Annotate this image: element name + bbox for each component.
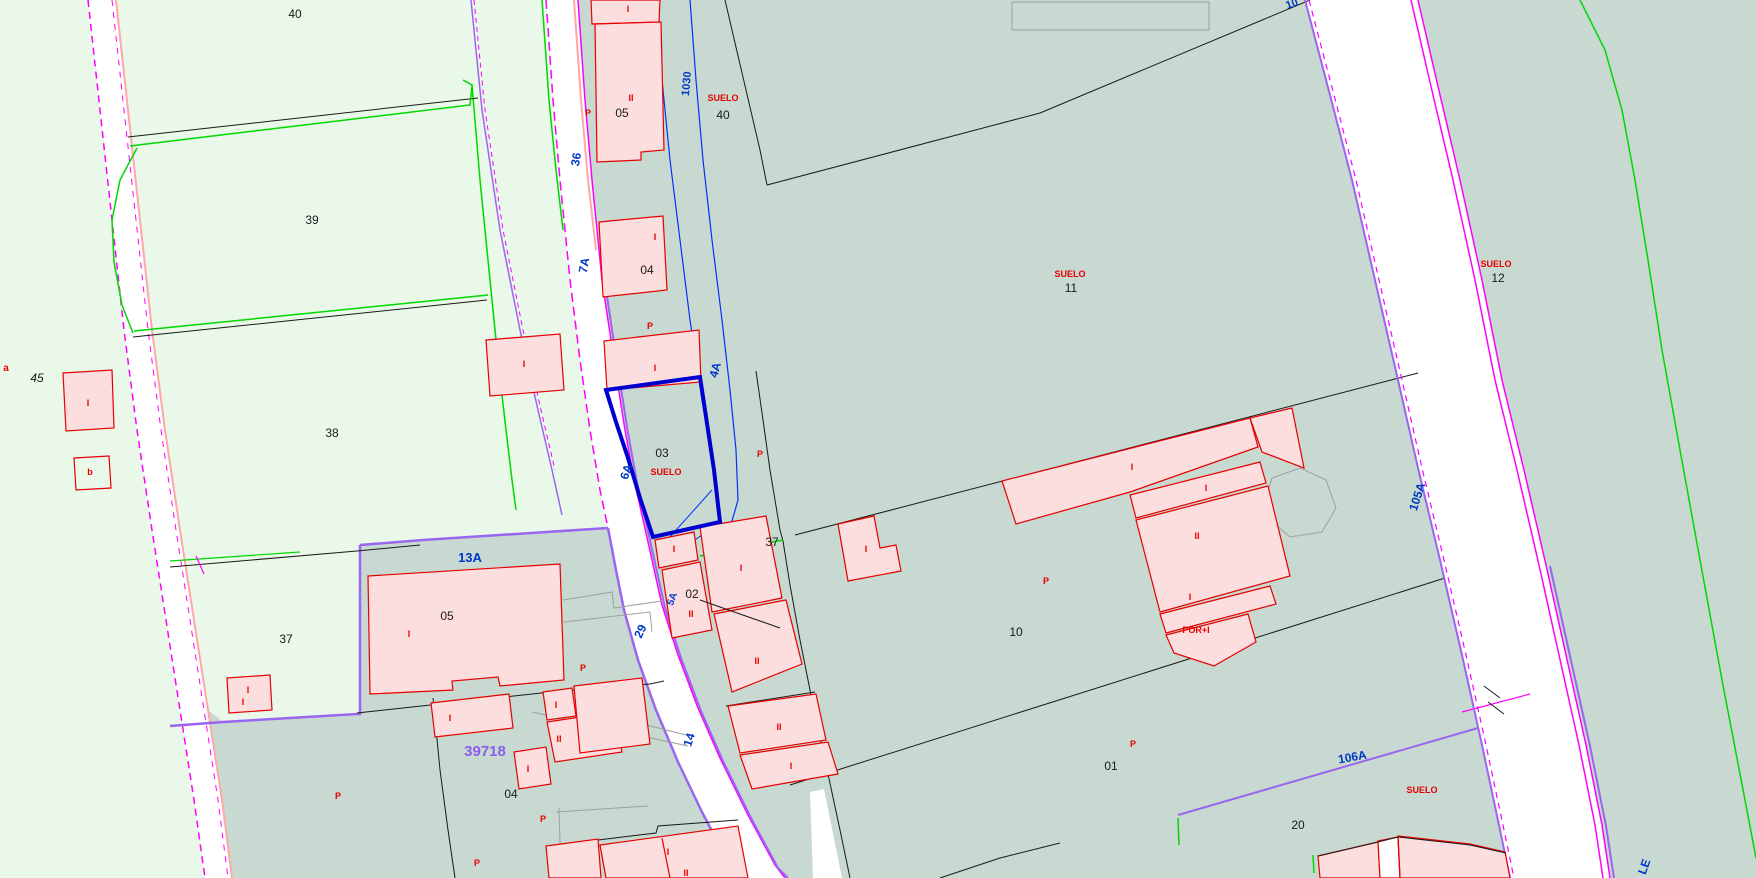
p-f-label: P — [474, 858, 480, 868]
bldg-e2c-i-label: I — [527, 764, 530, 774]
bldg-a6-label: POR+I — [1182, 625, 1209, 635]
building-strip[interactable] — [604, 330, 701, 390]
p-04-label: P — [647, 321, 653, 331]
bldg-45-i-label: I — [87, 398, 90, 408]
cadastral-map[interactable]: 40393845a37IbIII05IIIPSUELO4004IPI03SUEL… — [0, 0, 1756, 878]
bldg-e2a-i-label: I — [555, 700, 558, 710]
parcel-01-label: 01 — [1104, 759, 1118, 773]
bldg-e2b-ii-label: II — [556, 734, 561, 744]
bldg-02c-ii-label: II — [688, 609, 693, 619]
parcel-02-label: 02 — [685, 587, 699, 601]
suelo-11-label: SUELO — [1054, 269, 1085, 279]
parcel-03-label: 03 — [655, 446, 669, 460]
street-1030-label: 1030 — [680, 71, 694, 96]
green-tick-20 — [1178, 818, 1179, 845]
bldg-b-label: b — [87, 467, 93, 477]
bldg-02b-i-label: I — [740, 563, 743, 573]
bldg-a1-i-label: I — [1131, 462, 1134, 472]
parcel-45-label: 45 — [30, 371, 44, 385]
street-7a-label: 7A — [576, 256, 593, 274]
bldg-f1-ii-label: II — [683, 868, 688, 878]
building-05-top[interactable] — [595, 22, 664, 162]
bldg-a5-i-label: I — [1189, 592, 1192, 602]
bldg-13a-i-label: I — [408, 629, 411, 639]
bldg-e1-i-label: I — [449, 713, 452, 723]
parcel-05-13a-label: 05 — [440, 609, 454, 623]
parcel-40-num-label: 40 — [716, 108, 730, 122]
street-13a-label: 13A — [458, 550, 482, 565]
parcel-40-left-label: 40 — [288, 7, 302, 21]
parcel-11-label: 11 — [1065, 281, 1078, 295]
p-03east-label: P — [757, 449, 763, 459]
bldg-02d-ii-label: II — [754, 656, 759, 666]
suelo-03-label: SUELO — [650, 467, 681, 477]
bldg-top-i-label: I — [627, 4, 630, 14]
p-10-label: P — [1043, 576, 1049, 586]
bldg-02a-i-label: I — [673, 544, 676, 554]
parcel-10-label: 10 — [1009, 625, 1023, 639]
parcel-04-block-label: 04 — [504, 787, 518, 801]
suelo-40-label: SUELO — [707, 93, 738, 103]
bldg-a3-i-label: I — [1205, 483, 1208, 493]
building-20b[interactable] — [1378, 837, 1400, 878]
parcel-39-label: 39 — [305, 213, 319, 227]
street-36-label: 36 — [568, 151, 584, 167]
bldg-38-i-label: I — [523, 359, 526, 369]
parcel-12-label: 12 — [1491, 271, 1505, 285]
bldg-a4-ii-label: II — [1194, 531, 1199, 541]
cadastral-map-viewport[interactable]: 40393845a37IbIII05IIIPSUELO4004IPI03SUEL… — [0, 0, 1756, 878]
parcel-37-strip-label: 37 — [765, 535, 779, 549]
bldg-g2-i-label: I — [790, 761, 793, 771]
p-01-label: P — [1130, 739, 1136, 749]
building-04-top[interactable] — [599, 216, 667, 297]
bldg-strip-i-label: I — [654, 363, 657, 373]
building-13a-05[interactable] — [368, 564, 564, 694]
building-f0[interactable] — [546, 839, 601, 878]
parcel-04-top-label: 04 — [640, 263, 654, 277]
building-e2a[interactable] — [543, 688, 576, 720]
p-13a-label: P — [580, 663, 586, 673]
parcel-05-top-label: 05 — [615, 106, 629, 120]
building-e2d[interactable] — [574, 678, 650, 753]
bldg-37sm-i2-label: I — [242, 697, 245, 707]
bldg-f1-i-label: I — [667, 847, 670, 857]
bldg-04-i-label: I — [654, 232, 657, 242]
bldg-37sm-i1-label: I — [247, 685, 250, 695]
suelo-12-label: SUELO — [1480, 259, 1511, 269]
bldg-w1-i-label: I — [865, 544, 868, 554]
p-39718-label: P — [335, 791, 341, 801]
parcel-20-label: 20 — [1291, 818, 1305, 832]
bldg-g1-ii-label: II — [776, 722, 781, 732]
block-39718-label: 39718 — [464, 743, 506, 760]
building-top-i[interactable] — [591, 0, 660, 24]
p-top-label: P — [585, 108, 591, 118]
label-a: a — [3, 363, 9, 374]
green-tick-20b — [1313, 855, 1314, 873]
building-37-small[interactable] — [227, 675, 272, 713]
parcel-37-left-label: 37 — [279, 632, 293, 646]
parcel-38-label: 38 — [325, 426, 339, 440]
suelo-20-label: SUELO — [1406, 785, 1437, 795]
building-e2c[interactable] — [514, 747, 551, 789]
bldg-05-ii-label: II — [628, 93, 633, 103]
p-e2-label: P — [540, 814, 546, 824]
